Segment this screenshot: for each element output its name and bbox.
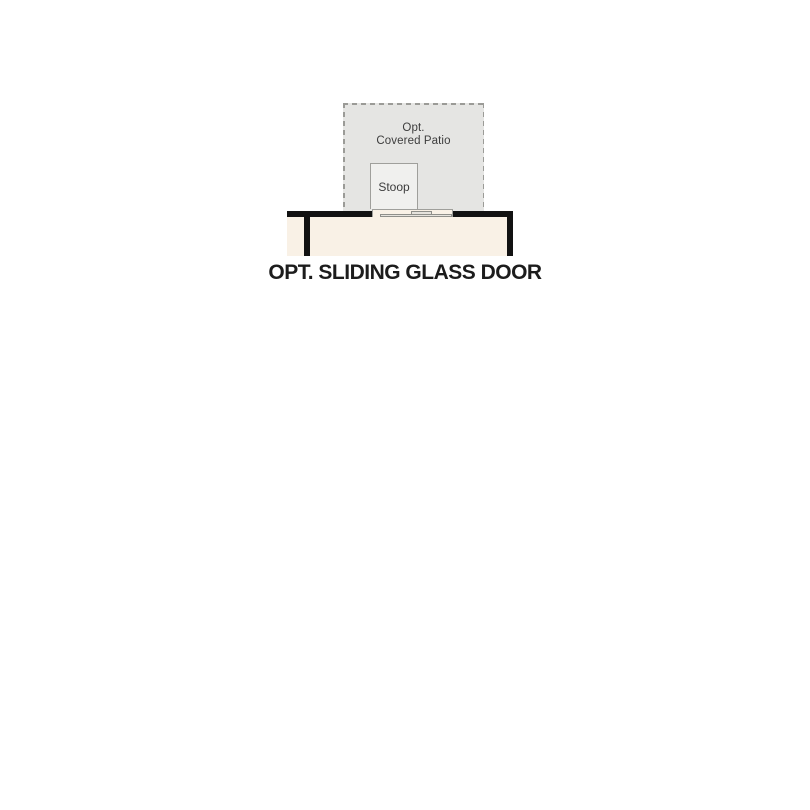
- covered-patio-label-line1: Opt.: [343, 122, 484, 135]
- covered-patio-label: Opt. Covered Patio: [343, 122, 484, 148]
- covered-patio-region: Opt. Covered Patio Stoop: [343, 103, 484, 211]
- stoop-label: Stoop: [378, 180, 409, 194]
- floor-plan-canvas: Opt. Covered Patio Stoop OPT. SLIDING GL…: [0, 0, 810, 810]
- patio-dashed-border-left: [343, 103, 345, 211]
- interior-wall: [304, 217, 310, 256]
- covered-patio-label-line2: Covered Patio: [343, 135, 484, 148]
- exterior-wall-right: [453, 211, 513, 217]
- interior-floor-region: [287, 217, 507, 256]
- exterior-wall-left: [287, 211, 372, 217]
- patio-dashed-border-right: [483, 103, 485, 211]
- patio-dashed-border-top: [343, 103, 484, 105]
- sliding-door-panel-overlap: [411, 211, 432, 215]
- exterior-wall-right-vertical: [507, 211, 513, 256]
- plan-option-title: OPT. SLIDING GLASS DOOR: [0, 262, 810, 284]
- stoop-region: Stoop: [370, 163, 418, 209]
